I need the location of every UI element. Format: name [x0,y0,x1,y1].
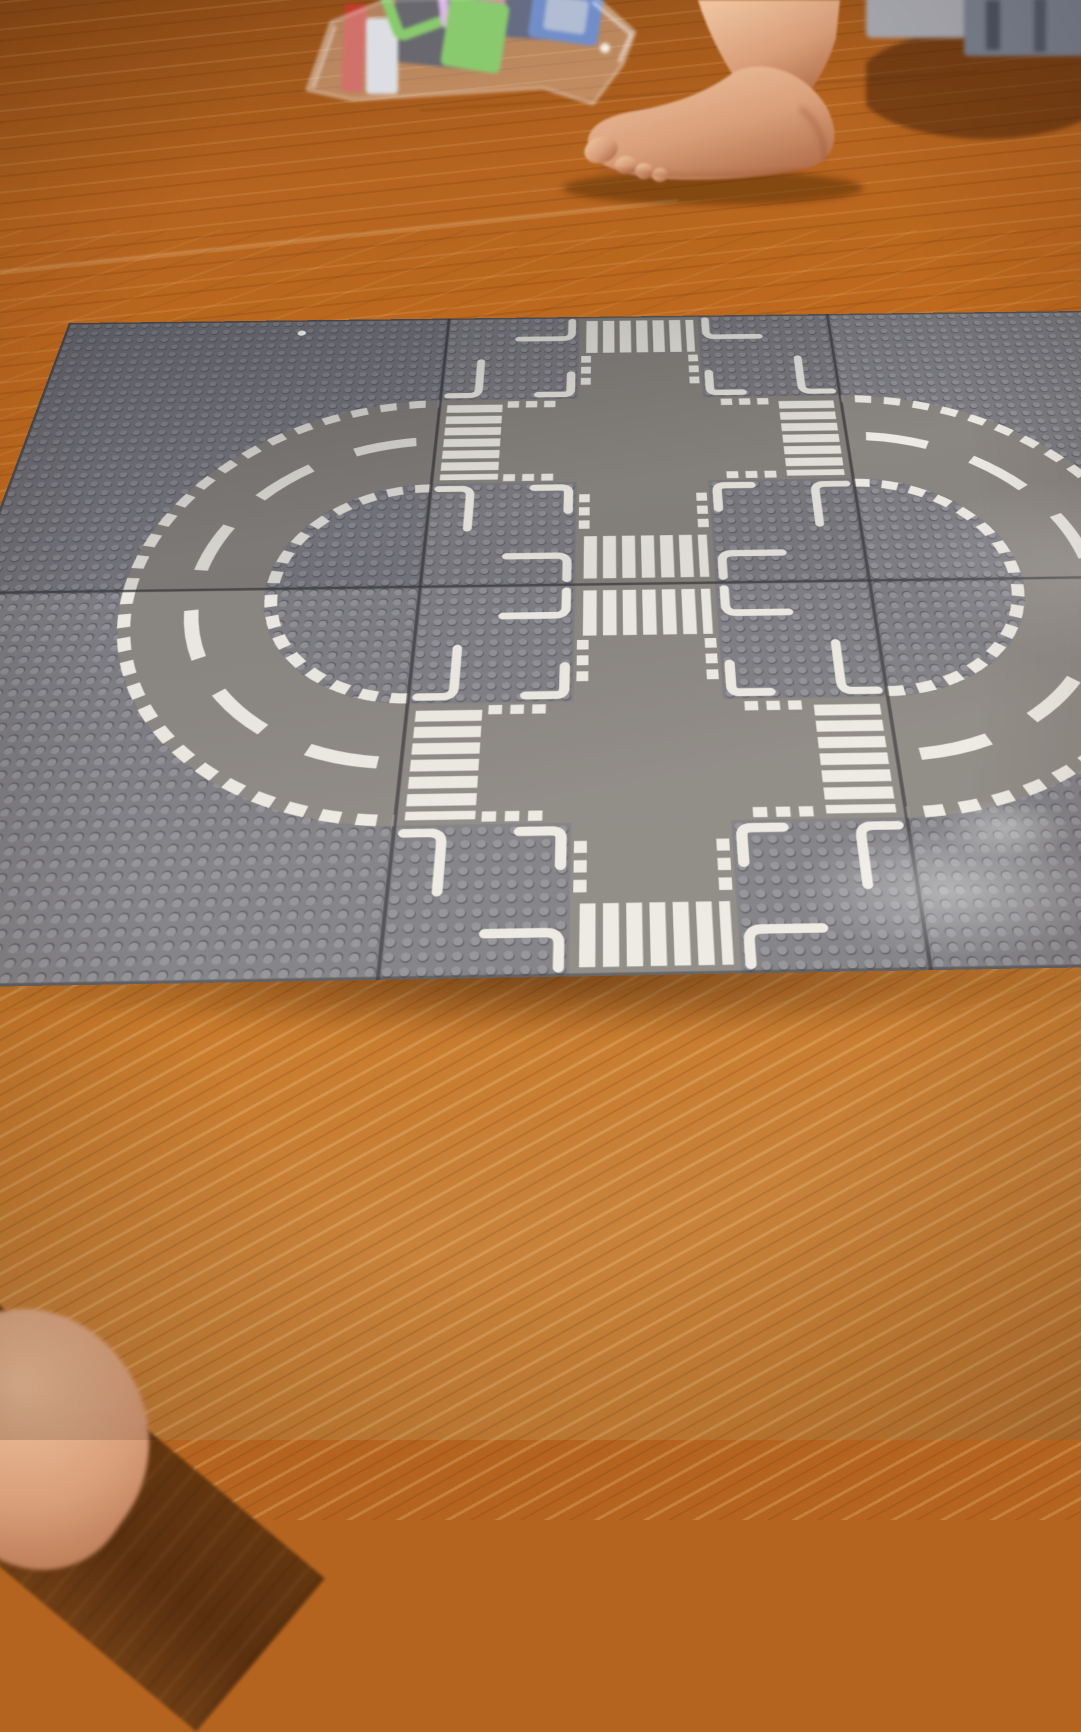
blurry-objects-top-right [866,0,1081,164]
object-stripe [1034,0,1046,52]
clear-plastic-bag [307,0,635,104]
bag-of-magnetic-tiles [293,0,653,127]
slate-object [964,0,1081,56]
gray-object [866,0,966,38]
baseplate-assembly [0,310,1081,990]
object-stripe [986,0,1000,50]
lighting-overlays [0,310,1081,990]
bag-glint [600,43,610,53]
